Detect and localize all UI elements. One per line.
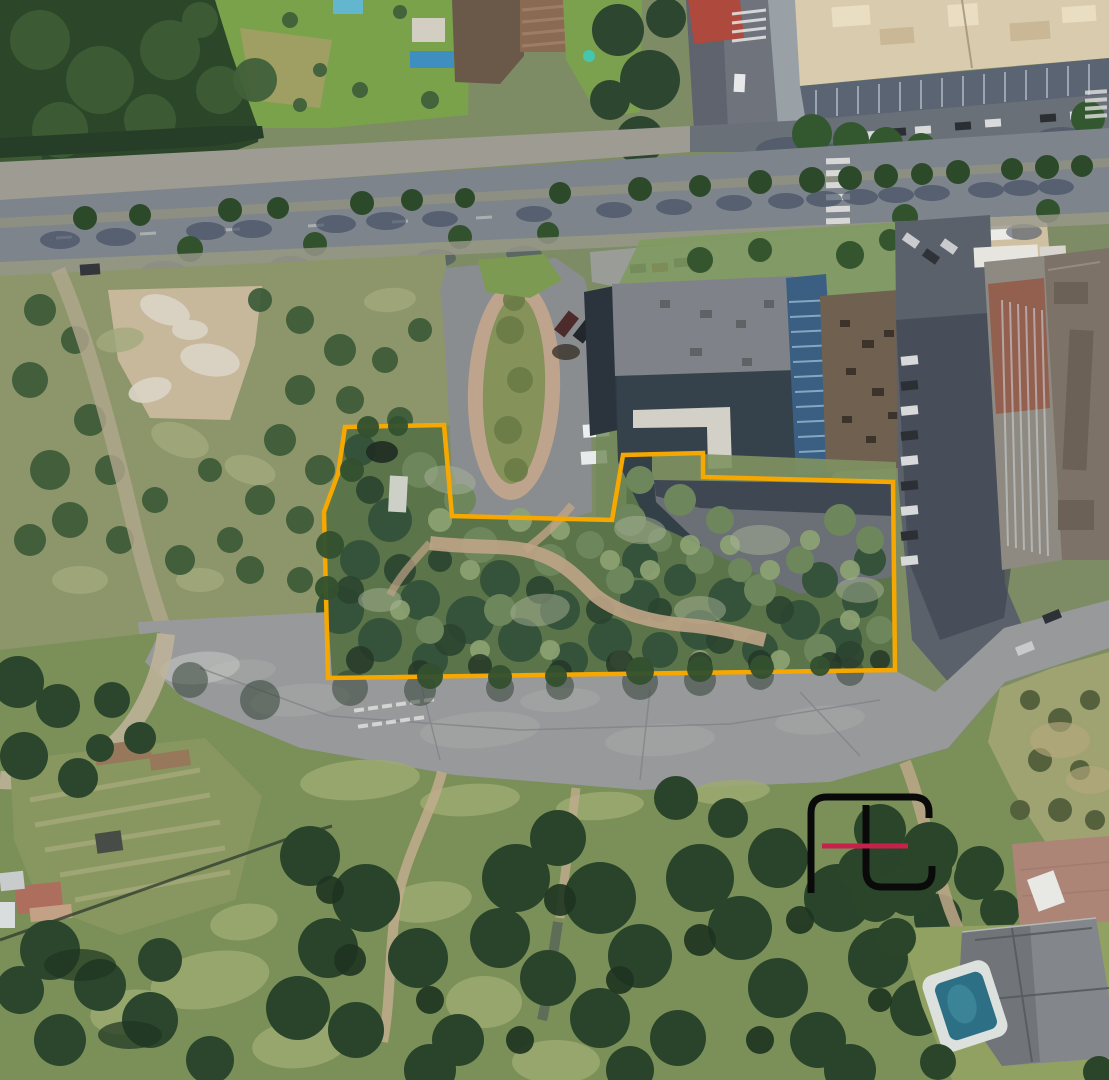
forest-top-left-canopies-item: [182, 2, 218, 38]
median-tree-shadows-item: [422, 211, 458, 227]
forest-top-left-canopies-item: [10, 10, 70, 70]
median-tree-shadows-item: [914, 185, 950, 201]
median-trees-item: [689, 175, 711, 197]
median-trees-item: [874, 164, 898, 188]
brown-roof-clutter-item: [842, 416, 852, 423]
parcel-trees-deeper-item: [356, 476, 384, 504]
parcel-trees-mid-item: [728, 558, 752, 582]
brown-roof-clutter-item: [872, 388, 884, 396]
scrub-bushes-item: [372, 347, 398, 373]
scrub-bushes-item: [305, 455, 335, 485]
scrub-bushes-item: [324, 334, 356, 366]
roof-structures-item: [831, 5, 870, 28]
median-trees-item: [1001, 158, 1023, 180]
crosswalk-avenue-item: [826, 158, 850, 165]
lawn-bushes-item: [233, 58, 277, 102]
median-tree-shadows-item: [516, 206, 552, 222]
grass-strip-trees-item: [836, 241, 864, 269]
parked-column-light-item: [901, 455, 919, 466]
bottom-forest-dark-item: [316, 876, 344, 904]
estate-garden-trees-item: [852, 874, 900, 922]
terrace-roof-pink: [1012, 836, 1109, 930]
parked-column-dark-item: [901, 430, 919, 441]
parked-column-light-item: [901, 405, 919, 416]
roof-vents-item: [660, 300, 670, 308]
crosswalk-avenue-item: [826, 218, 850, 225]
boundary-occluder-trees-item: [417, 663, 443, 689]
median-trees-item: [799, 167, 825, 193]
parked-column-dark-item: [901, 480, 919, 491]
bottom-forest-dark-item: [334, 944, 366, 976]
scrub-bushes-item: [142, 487, 168, 513]
median-tree-shadows-item: [878, 187, 914, 203]
bottom-forest-item: [470, 908, 530, 968]
parcel-trees-mid-item: [856, 526, 884, 554]
median-tree-shadows-item: [232, 220, 272, 238]
bottom-forest-dark-item: [506, 1026, 534, 1054]
bottom-forest-dark-item: [606, 966, 634, 994]
median-trees-item: [455, 188, 475, 208]
bottom-forest-item: [748, 958, 808, 1018]
median-tree-shadows-item: [40, 231, 80, 249]
island-vegetation-item: [496, 316, 524, 344]
parcel-trees-light-item: [680, 535, 700, 555]
boundary-occluder-trees-item: [340, 458, 364, 482]
scrub-bushes-item: [287, 567, 313, 593]
parcel-trees-mid-item: [706, 506, 734, 534]
scrub-bushes-item: [217, 527, 243, 553]
aerial-view: [0, 0, 1109, 1080]
parcel-trees-mid-item: [786, 546, 814, 574]
boundary-occluder-trees-item: [626, 657, 654, 685]
esplanade-tree-shadows-item: [172, 662, 208, 698]
parcel-trees-mid-item: [866, 616, 894, 644]
trees-top-mid-item: [592, 4, 644, 56]
roof-vents-item: [700, 310, 712, 318]
olive-bushes-item: [1010, 800, 1030, 820]
boundary-occluder-trees-item: [315, 576, 339, 600]
parcel-south-shade-item: [870, 650, 890, 670]
median-trees-item: [1071, 155, 1093, 177]
median-trees-item: [838, 166, 862, 190]
brown-building: [820, 290, 902, 472]
lawn-bushes-item: [282, 12, 298, 28]
bottom-forest-item: [266, 976, 330, 1040]
brown-roof-clutter-item: [846, 368, 856, 375]
parked-column-dark-item: [901, 530, 919, 541]
estate-garden-trees-item: [876, 918, 916, 958]
scrub-bushes-item: [286, 306, 314, 334]
median-tree-shadows-item: [968, 182, 1004, 198]
estate-garden-trees-item: [954, 856, 998, 900]
right-roof-clutter-item: [1058, 500, 1094, 530]
bottom-forest-dark-item: [544, 884, 576, 916]
bare-white-blobs-item: [172, 320, 208, 340]
bottom-forest-dark-item: [786, 906, 814, 934]
scrub-bushes-item: [285, 375, 315, 405]
left-forest-blobs-item: [86, 734, 114, 762]
parked-column-light-item: [901, 355, 919, 366]
bottom-forest-dark-item: [684, 924, 716, 956]
median-tree-shadows-item: [596, 202, 632, 218]
lane-dashes-item: [476, 217, 492, 218]
terrace-shed: [95, 830, 124, 853]
median-trees-item: [73, 206, 97, 230]
median-trees-item: [946, 160, 970, 184]
parcel-trees-light-item: [540, 640, 560, 660]
roof-vents-item: [690, 348, 702, 356]
car-shadow-blob: [552, 344, 580, 360]
parcel-trees-mid-item: [664, 484, 696, 516]
bottom-forest-item: [570, 988, 630, 1048]
bottom-forest-dark-item: [416, 986, 444, 1014]
parked-column-dark-item: [901, 380, 919, 391]
left-forest-shadows-item: [98, 1021, 162, 1049]
scrub-bushes-item: [286, 506, 314, 534]
parcel-trees-mid-item: [416, 616, 444, 644]
parked-cars-top-street-dark-item: [1040, 113, 1057, 122]
left-forest-blobs-item: [34, 1014, 86, 1066]
white-roof-bit: [0, 871, 25, 891]
parcel-pale-facets-item: [836, 577, 884, 603]
olive-bushes-item: [1048, 798, 1072, 822]
brown-roof-clutter-item: [888, 412, 898, 419]
parcel-trees-mid-item: [606, 566, 634, 594]
parcel-trees-light-item: [840, 560, 860, 580]
lane-dashes-item: [140, 233, 156, 234]
parcel-pale-facets-item: [730, 525, 790, 555]
boundary-occluder-trees-item: [357, 416, 379, 438]
scrub-bushes-item: [248, 288, 272, 312]
trees-top-mid-item: [590, 80, 630, 120]
satellite-aerial-photo: [0, 0, 1109, 1080]
boundary-occluder-trees-item: [810, 656, 830, 676]
scrub-bushes-item: [24, 294, 56, 326]
scrub-bushes-item: [264, 424, 296, 456]
bottom-forest-item: [708, 798, 748, 838]
parcel-trees-light-item: [428, 508, 452, 532]
median-tree-shadows-item: [366, 212, 406, 230]
parked-cars-top-street-item: [985, 118, 1002, 127]
lawn-bushes-item: [293, 98, 307, 112]
scrub-bushes-item: [336, 386, 364, 414]
estate-garden-trees-item: [920, 1044, 956, 1080]
left-forest-blobs-item: [138, 938, 182, 982]
grass-strip-trees-item: [748, 238, 772, 262]
median-tree-shadows-item: [1038, 179, 1074, 195]
scrub-bushes-item: [30, 450, 70, 490]
median-tree-shadows-item: [842, 189, 878, 205]
median-tree-shadows-item: [768, 193, 804, 209]
median-tree-shadows-item: [316, 215, 356, 233]
patio-top: [412, 18, 445, 42]
car-vertical-street: [734, 74, 746, 93]
median-trees-item: [748, 170, 772, 194]
parcel-shed-ruin: [388, 476, 408, 513]
median-tree-shadows-item: [1003, 180, 1039, 196]
bottom-forest-item: [328, 1002, 384, 1058]
boundary-occluder-trees-item: [545, 665, 567, 687]
left-forest-blobs-item: [58, 758, 98, 798]
parcel-trees-mid-item: [824, 504, 856, 536]
roof-vents-item: [736, 320, 746, 328]
median-tree-shadows-item: [806, 191, 842, 207]
roof-vents-item: [764, 300, 774, 308]
boundary-occluder-trees-item: [750, 655, 774, 679]
boundary-occluder-trees-item: [316, 531, 344, 559]
island-vegetation-item: [494, 416, 522, 444]
median-trees-item: [549, 182, 571, 204]
parcel-trees-dark-item: [340, 540, 380, 580]
brown-roof-clutter-item: [884, 330, 894, 337]
garden-teal-object: [583, 50, 595, 62]
bottom-forest-item: [650, 1010, 706, 1066]
bottom-forest-item: [388, 928, 448, 988]
olive-bushes-item: [1080, 690, 1100, 710]
scrub-bushes-item: [198, 458, 222, 482]
island-vegetation-item: [507, 367, 533, 393]
grass-strip-trees-item: [687, 247, 713, 273]
scrub-bushes-item: [408, 318, 432, 342]
parked-column-light-item: [901, 555, 919, 566]
lawn-bushes-item: [313, 63, 327, 77]
lawn-bushes-item: [393, 5, 407, 19]
median-tree-shadows-item: [96, 228, 136, 246]
median-trees-item: [267, 197, 289, 219]
left-forest-blobs-item: [36, 684, 80, 728]
median-trees-item: [350, 191, 374, 215]
brown-roof-clutter-item: [840, 320, 850, 327]
building-north-roof: [612, 276, 796, 376]
parcel-trees-light-item: [460, 560, 480, 580]
left-forest-blobs-item: [124, 722, 156, 754]
bottom-forest-item: [708, 896, 772, 960]
median-trees-item: [218, 198, 242, 222]
left-forest-blobs-item: [0, 732, 48, 780]
boundary-occluder-trees-item: [687, 656, 713, 682]
roof-vents-item: [742, 358, 752, 366]
bottom-forest-item: [748, 828, 808, 888]
white-vehicle-left: [0, 902, 15, 928]
median-tree-shadows-item: [656, 199, 692, 215]
olive-bushes-item: [1085, 810, 1105, 830]
scrub-bushes-item: [236, 556, 264, 584]
lawn-bushes-item: [352, 82, 368, 98]
left-forest-shadows-item: [44, 949, 116, 981]
median-trees-item: [911, 163, 933, 185]
bottom-forest-item: [520, 950, 576, 1006]
scrub-bushes-item: [12, 362, 48, 398]
scrub-bushes-item: [245, 485, 275, 515]
parked-cars-top-street-dark-item: [955, 121, 972, 130]
olive-bushes-item: [1020, 690, 1040, 710]
right-roof-clutter-item: [1054, 282, 1088, 304]
parcel-trees-light-item: [760, 560, 780, 580]
pool-top-2: [410, 51, 454, 68]
esplanade-tree-shadows-item: [240, 680, 280, 720]
parcel-trees-light-item: [600, 550, 620, 570]
scrub-bushes-item: [14, 524, 46, 556]
median-trees-item: [628, 177, 652, 201]
boundary-occluder-trees-item: [488, 665, 512, 689]
parcel-trees-light-item: [640, 560, 660, 580]
median-tree-shadows-item: [716, 195, 752, 211]
scrub-light-patches-item: [52, 566, 108, 594]
median-trees-item: [1035, 155, 1059, 179]
bottom-forest-item: [654, 776, 698, 820]
median-trees-item: [129, 204, 151, 226]
pool-top-1: [333, 0, 363, 14]
brown-roof-clutter-item: [866, 436, 876, 443]
scrub-bushes-item: [52, 502, 88, 538]
parcel-south-shade-item: [346, 646, 374, 674]
brown-roof-clutter-item: [862, 340, 874, 348]
olive-dry-patches-item: [1030, 722, 1090, 758]
parked-car-scrub-road: [80, 263, 101, 275]
island-vegetation-item: [504, 458, 528, 482]
parcel-trees-mid-item: [626, 466, 654, 494]
roof-structures-item: [1061, 5, 1096, 23]
forest-top-left-canopies-item: [66, 46, 134, 114]
parcel-trees-mid-item: [576, 531, 604, 559]
roof-structures-2-item: [879, 27, 914, 45]
parked-column-light-item: [901, 505, 919, 516]
parcel-trees-light-item: [800, 530, 820, 550]
scrub-bushes-item: [165, 545, 195, 575]
roof-structures-2-item: [1009, 21, 1050, 42]
bottom-forest-dark-item: [746, 1026, 774, 1054]
median-trees-item: [401, 189, 423, 211]
parcel-trees-light-item: [840, 610, 860, 630]
lawn-bushes-item: [421, 91, 439, 109]
parcel-dark-pond: [366, 441, 398, 463]
bottom-forest-item: [530, 810, 586, 866]
left-forest-blobs-item: [94, 682, 130, 718]
boundary-occluder-trees-item: [388, 416, 408, 436]
bottom-forest-dark-item: [868, 988, 892, 1012]
